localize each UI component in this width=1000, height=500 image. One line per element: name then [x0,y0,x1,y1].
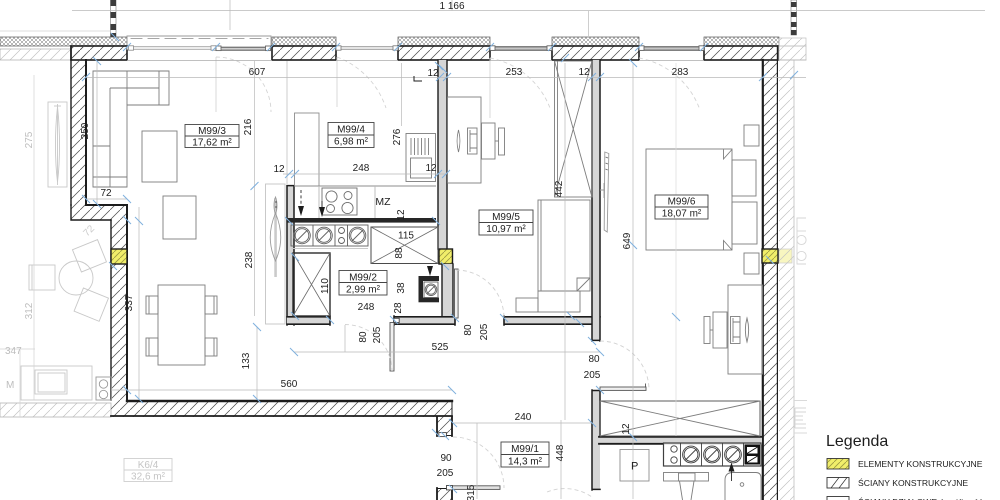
svg-text:216: 216 [243,118,254,135]
svg-text:72: 72 [100,188,112,199]
svg-text:248: 248 [358,302,375,313]
svg-text:12: 12 [427,68,439,79]
svg-text:205: 205 [372,326,383,343]
svg-text:17,62 m²: 17,62 m² [192,138,232,149]
svg-text:6,98 m²: 6,98 m² [334,137,369,148]
svg-text:38: 38 [396,282,407,294]
svg-text:315: 315 [466,484,477,500]
svg-text:Legenda: Legenda [826,433,888,450]
svg-text:1 166: 1 166 [439,1,464,12]
svg-text:M99/6: M99/6 [668,197,696,208]
svg-text:P: P [631,461,638,473]
svg-text:205: 205 [479,323,490,340]
svg-text:133: 133 [241,352,252,369]
svg-text:442: 442 [554,180,565,197]
svg-text:253: 253 [506,67,523,78]
svg-text:M99/2: M99/2 [349,273,377,284]
svg-text:12: 12 [396,209,407,221]
svg-text:275: 275 [24,131,35,148]
svg-text:607: 607 [249,67,266,78]
svg-text:MZ: MZ [375,196,391,208]
svg-text:205: 205 [584,370,601,381]
svg-text:28: 28 [393,302,404,314]
svg-text:18,07 m²: 18,07 m² [662,209,702,220]
svg-text:2,99 m²: 2,99 m² [346,285,381,296]
svg-text:649: 649 [622,232,633,249]
svg-text:337: 337 [124,294,135,311]
svg-text:12: 12 [425,163,437,174]
svg-text:238: 238 [244,251,255,268]
svg-text:ŚCIANY KONSTRUKCYJNE: ŚCIANY KONSTRUKCYJNE [858,477,968,488]
svg-text:ELEMENTY KONSTRUKCYJNE: ELEMENTY KONSTRUKCYJNE [858,459,983,469]
svg-text:K6/4: K6/4 [138,460,159,471]
svg-text:283: 283 [672,67,689,78]
svg-text:80: 80 [358,331,369,343]
svg-text:347: 347 [5,346,22,357]
svg-text:80: 80 [588,354,600,365]
svg-text:M99/3: M99/3 [198,126,226,137]
svg-text:525: 525 [432,342,449,353]
svg-text:14,3 m²: 14,3 m² [508,457,543,468]
svg-text:10,97 m²: 10,97 m² [486,224,526,235]
svg-text:M99/5: M99/5 [492,212,520,223]
svg-text:ŚCIANY DZIAŁOWE (możliwość ara: ŚCIANY DZIAŁOWE (możliwość aranżacji) [858,496,1000,500]
svg-text:12: 12 [273,164,285,175]
svg-text:M: M [6,380,14,391]
svg-text:250: 250 [80,122,91,139]
svg-text:115: 115 [398,231,414,242]
svg-text:80: 80 [463,324,474,336]
svg-text:205: 205 [437,468,454,479]
svg-text:32,6 m²: 32,6 m² [131,472,166,483]
svg-text:312: 312 [24,302,35,319]
svg-text:110: 110 [320,278,331,294]
svg-text:248: 248 [353,163,370,174]
svg-text:276: 276 [392,128,403,145]
svg-text:12: 12 [578,67,590,78]
svg-text:90: 90 [440,453,452,464]
svg-text:88: 88 [394,247,405,259]
svg-text:M99/1: M99/1 [511,444,539,455]
svg-text:560: 560 [281,379,298,390]
svg-text:240: 240 [515,412,532,423]
svg-text:M99/4: M99/4 [337,125,365,136]
svg-text:12: 12 [621,423,632,435]
svg-text:448: 448 [555,444,566,461]
